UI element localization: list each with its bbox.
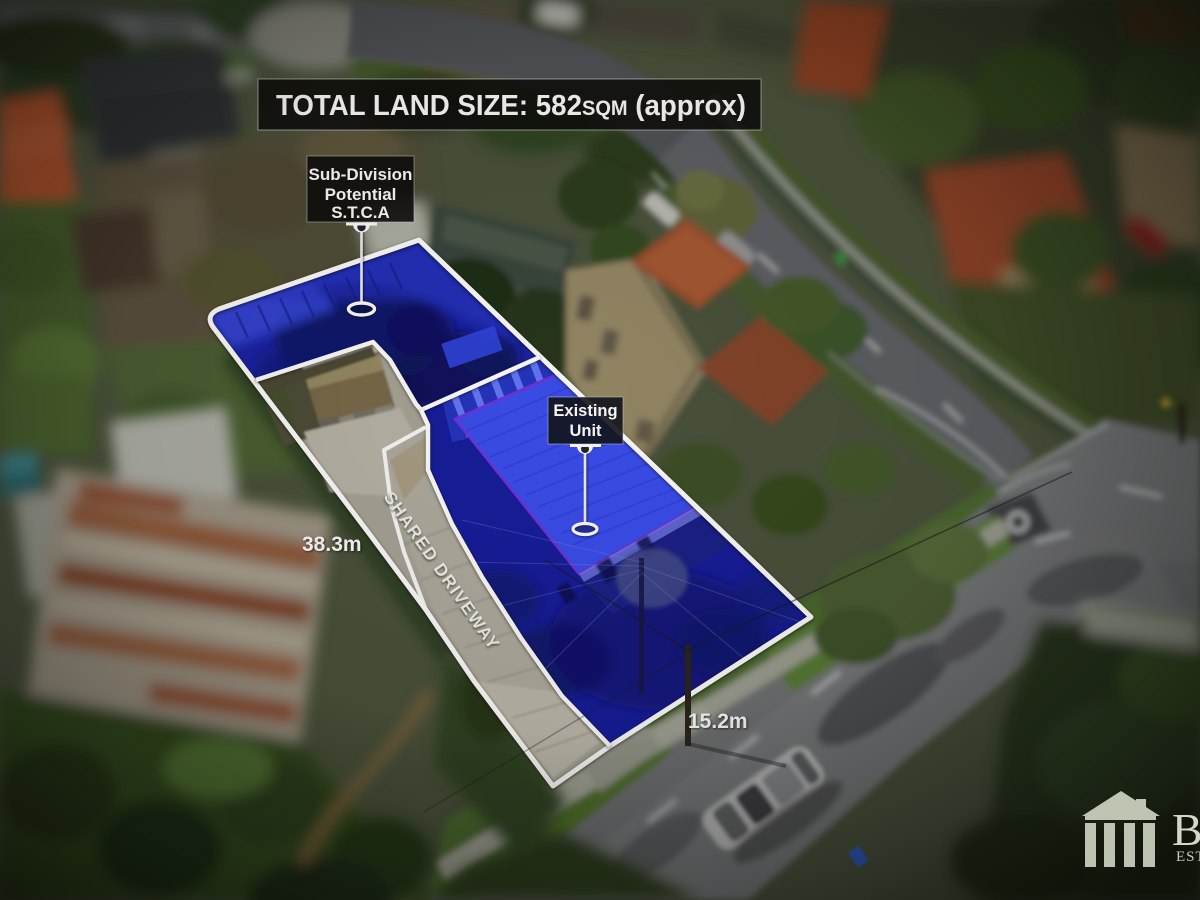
svg-text:ESTAT: ESTAT [1176,849,1200,865]
svg-text:Be: Be [1172,804,1200,855]
